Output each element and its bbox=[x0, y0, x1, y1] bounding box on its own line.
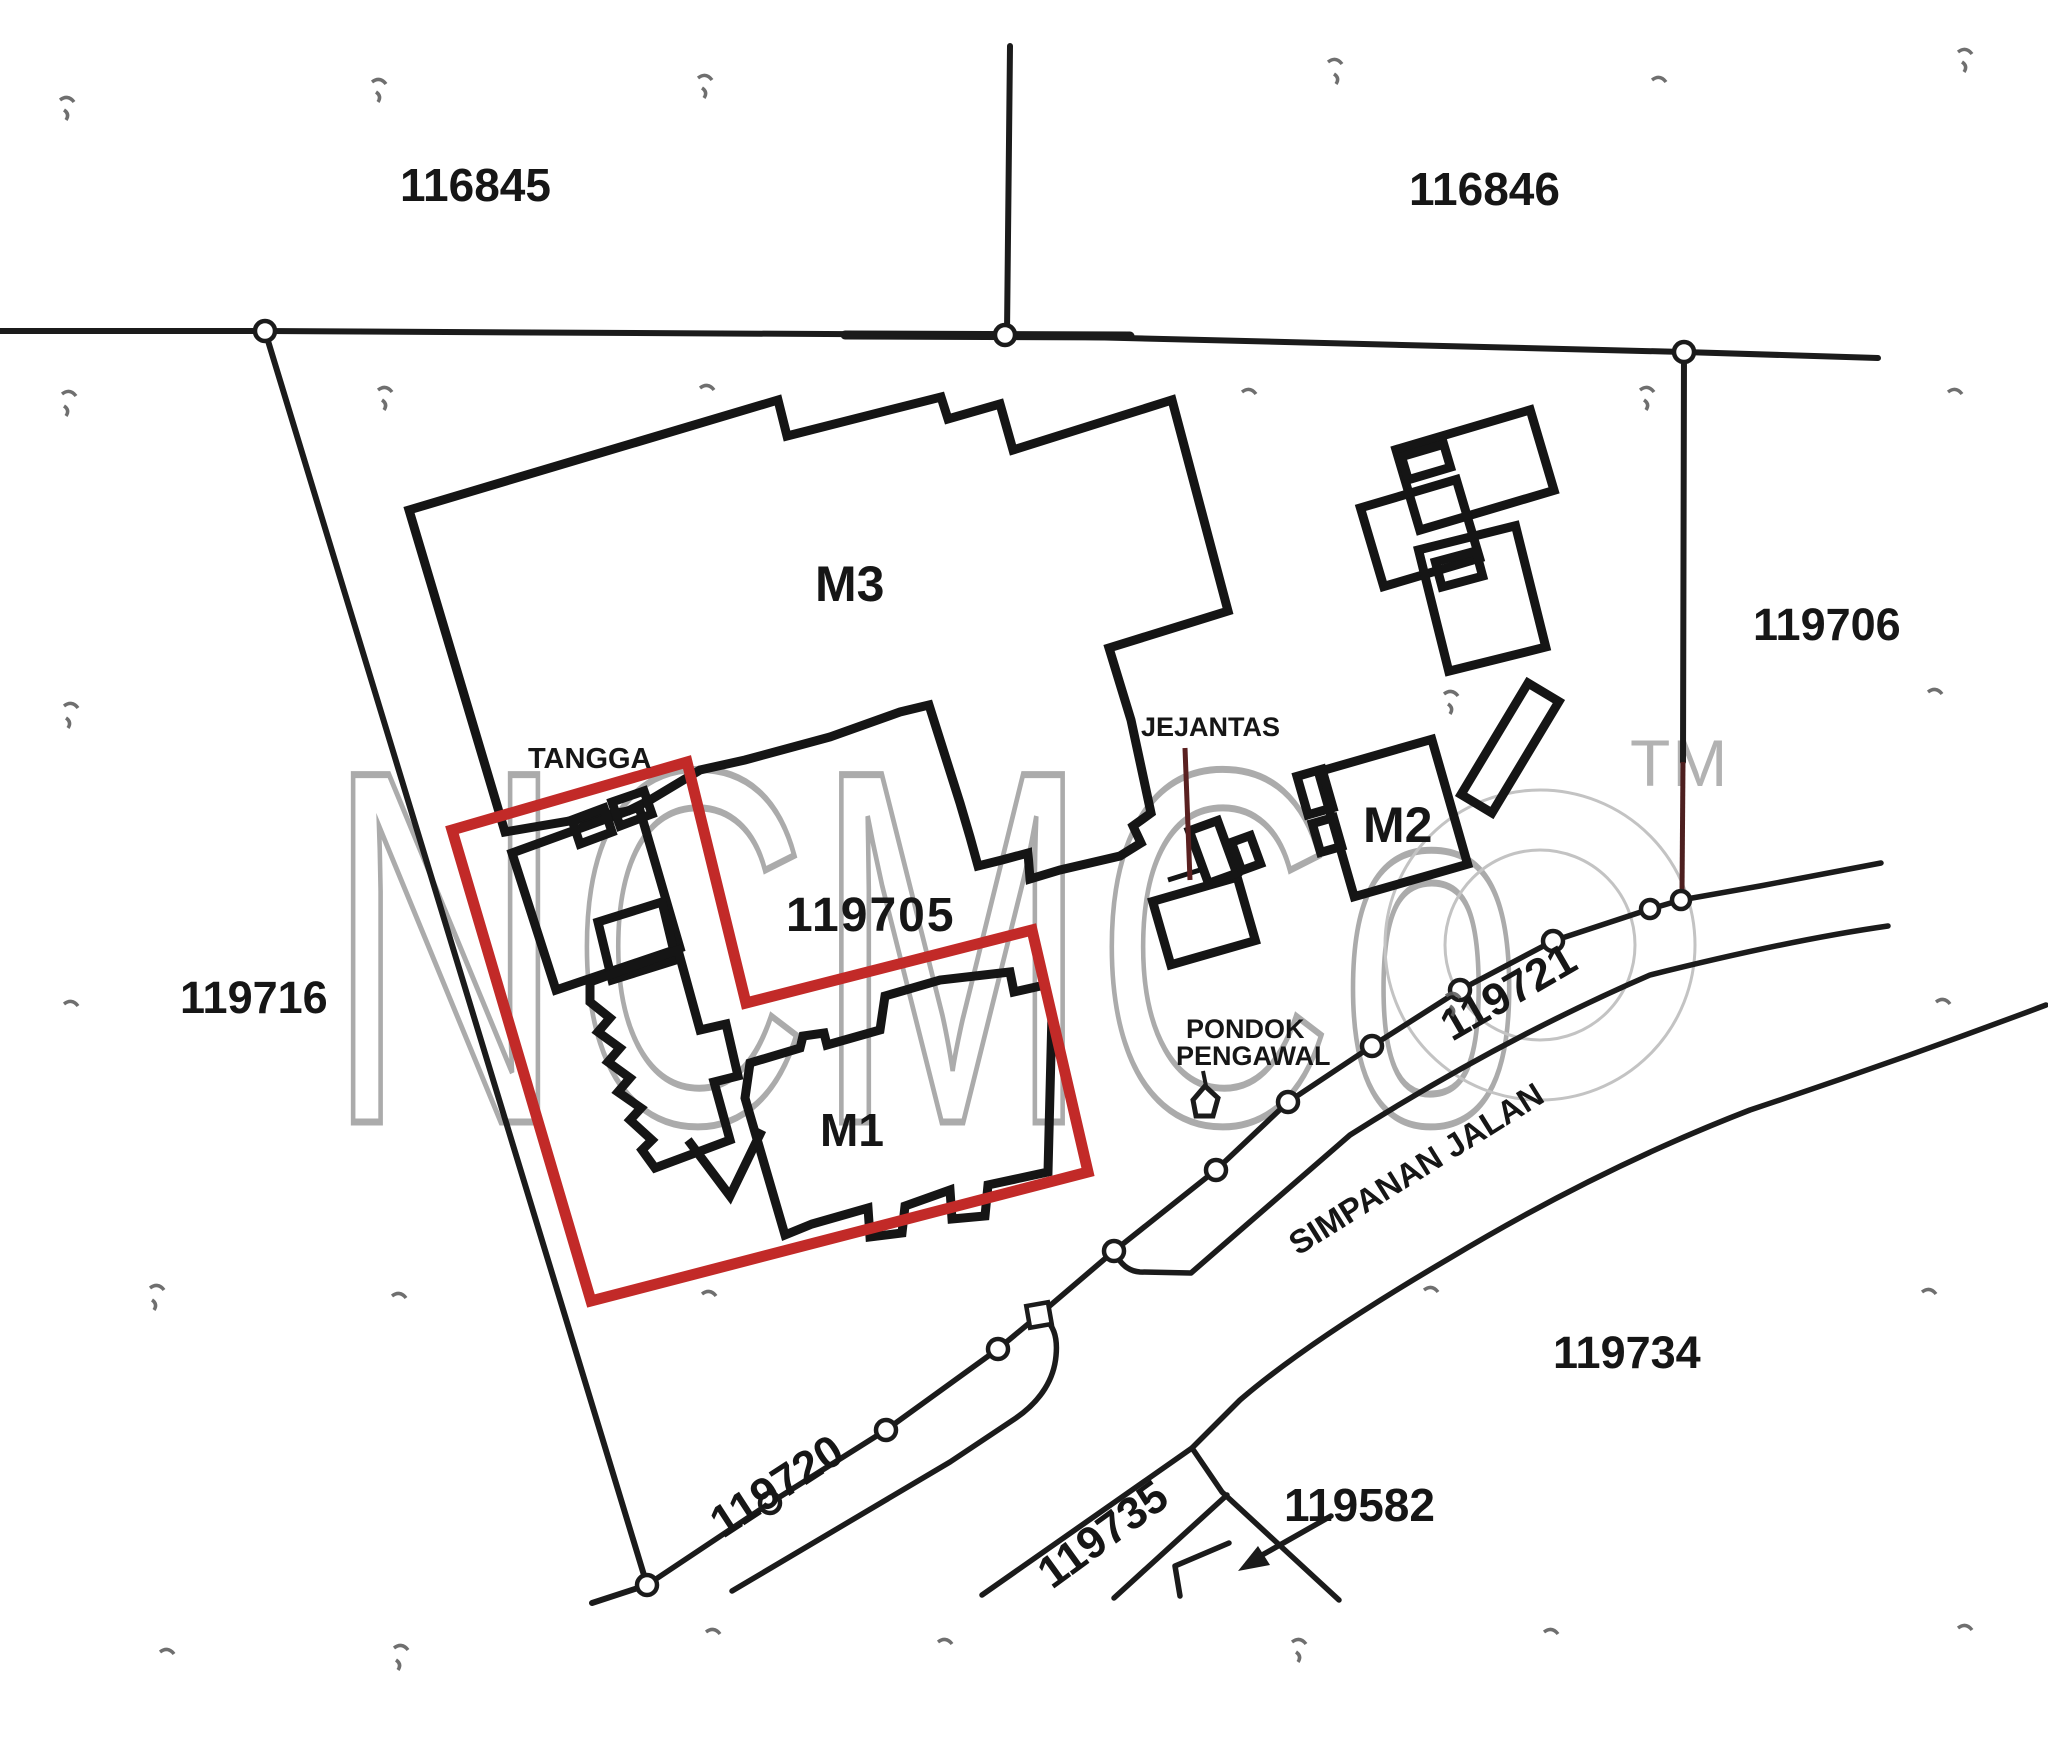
svg-text:119582: 119582 bbox=[1284, 1479, 1435, 1531]
svg-text:M1: M1 bbox=[820, 1104, 884, 1156]
svg-text:PENGAWAL: PENGAWAL bbox=[1176, 1041, 1331, 1071]
svg-text:TANGGA: TANGGA bbox=[528, 743, 652, 775]
svg-text:116845: 116845 bbox=[400, 159, 551, 211]
svg-text:M2: M2 bbox=[1363, 797, 1432, 853]
svg-text:119705: 119705 bbox=[786, 889, 956, 942]
svg-text:JEJANTAS: JEJANTAS bbox=[1141, 712, 1280, 742]
svg-text:116846: 116846 bbox=[1409, 163, 1560, 215]
svg-text:119716: 119716 bbox=[180, 972, 328, 1023]
svg-text:M3: M3 bbox=[815, 556, 884, 612]
svg-text:119734: 119734 bbox=[1553, 1327, 1701, 1378]
svg-text:TM: TM bbox=[1630, 726, 1729, 800]
svg-text:NCMCo: NCMCo bbox=[326, 667, 1528, 1230]
svg-text:119706: 119706 bbox=[1753, 599, 1901, 650]
svg-text:PONDOK: PONDOK bbox=[1186, 1014, 1305, 1044]
